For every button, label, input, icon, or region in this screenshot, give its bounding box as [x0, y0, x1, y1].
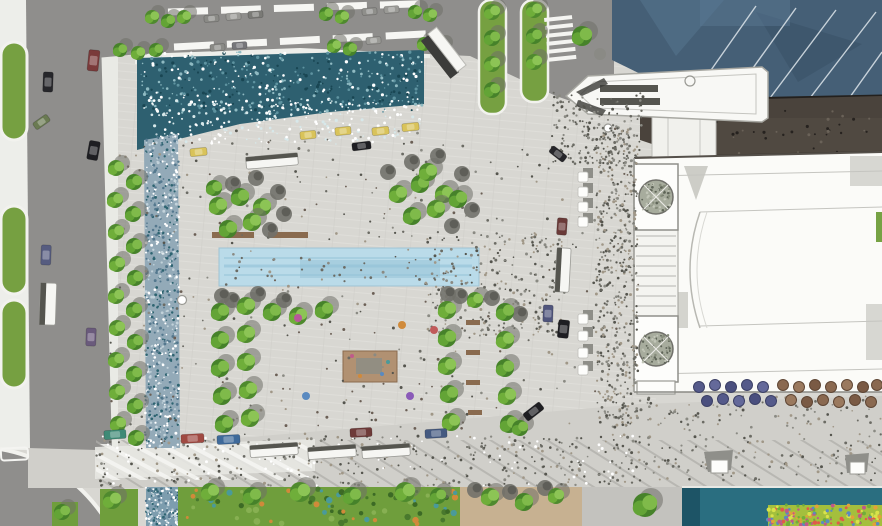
louver-corridor — [634, 230, 678, 318]
median-island-2 — [1, 206, 27, 294]
harbour-water-dark — [682, 487, 700, 526]
ferry-cabin-1 — [600, 85, 658, 92]
ferry-terminal-plaza-site-plan — [0, 0, 882, 526]
kiosk-1 — [711, 460, 728, 473]
median-island-3 — [1, 300, 27, 388]
left-road — [26, 0, 112, 450]
shore-boulder — [594, 48, 606, 60]
roof-plane-2 — [866, 304, 882, 360]
platform-sculpture — [356, 358, 382, 374]
plaza-info-marker — [178, 296, 187, 305]
building-edge-green — [876, 212, 882, 242]
median-island-1 — [1, 42, 27, 140]
ferry-funnel — [685, 76, 695, 86]
kiosk-2 — [850, 462, 865, 474]
site-plan-canvas — [0, 0, 882, 526]
south-paving — [582, 487, 682, 526]
